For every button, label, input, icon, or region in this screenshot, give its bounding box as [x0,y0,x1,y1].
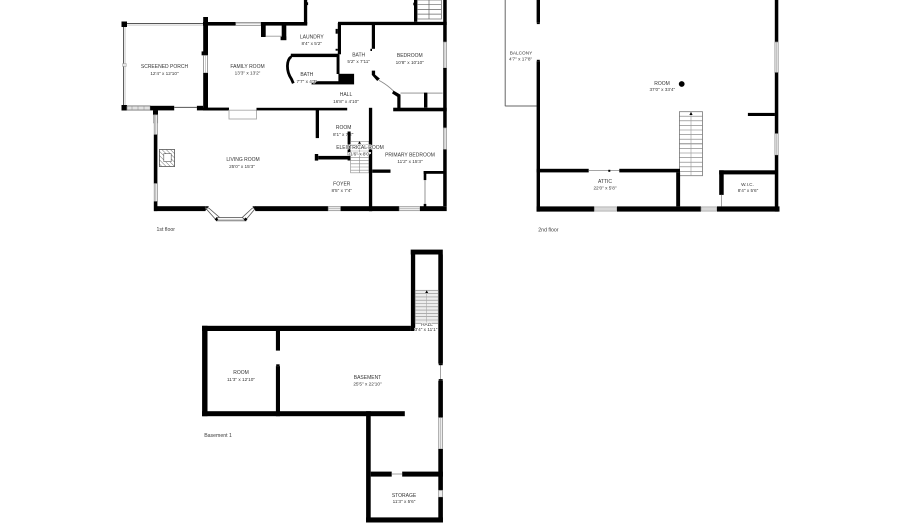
svg-text:HALL: HALL [340,92,353,98]
svg-text:16'8" x 4'10": 16'8" x 4'10" [333,99,359,104]
svg-text:LAUNDRY: LAUNDRY [300,35,324,41]
svg-text:4'7" x 17'8": 4'7" x 17'8" [509,56,532,61]
svg-text:3'4" x 11'1": 3'4" x 11'1" [415,327,438,332]
svg-text:W.I.C.: W.I.C. [741,182,754,187]
svg-text:2nd floor: 2nd floor [538,228,558,234]
svg-text:ROOM: ROOM [233,370,249,376]
svg-text:BALCONY: BALCONY [510,50,533,55]
svg-text:11'6" x 8'0": 11'6" x 8'0" [348,152,371,157]
svg-text:ATTIC: ATTIC [598,179,612,185]
svg-text:5'2" x 7'11": 5'2" x 7'11" [347,59,370,64]
svg-text:25'0" x 15'3": 25'0" x 15'3" [229,164,255,169]
svg-text:8'4" x 5'2": 8'4" x 5'2" [302,41,323,46]
svg-text:SCREENED PORCH: SCREENED PORCH [141,64,189,70]
svg-text:Basement 1: Basement 1 [204,433,232,439]
svg-text:BASEMENT: BASEMENT [354,375,382,381]
svg-text:8'1" x 7'2": 8'1" x 7'2" [333,132,354,137]
svg-text:11'3" x 5'6": 11'3" x 5'6" [393,499,416,504]
svg-text:25'5" x 22'10": 25'5" x 22'10" [353,381,382,386]
svg-text:13'3" x 13'2": 13'3" x 13'2" [235,71,261,76]
svg-text:BATH: BATH [300,72,313,78]
svg-text:ROOM: ROOM [336,125,352,131]
svg-text:PRIMARY BEDROOM: PRIMARY BEDROOM [385,152,435,158]
svg-text:BATH: BATH [352,53,365,59]
svg-text:ELECTRICAL ROOM: ELECTRICAL ROOM [336,145,384,151]
svg-text:8'5" x 7'4": 8'5" x 7'4" [332,188,353,193]
svg-text:FOYER: FOYER [333,181,351,187]
svg-text:1st floor: 1st floor [157,227,176,233]
svg-text:11'2" x 15'3": 11'2" x 15'3" [397,159,423,164]
svg-text:8'4" x 5'6": 8'4" x 5'6" [738,188,759,193]
svg-text:BEDROOM: BEDROOM [397,53,423,59]
svg-text:7'7" x 4'3": 7'7" x 4'3" [297,79,318,84]
svg-text:22'0" x 5'8": 22'0" x 5'8" [593,186,616,191]
svg-text:LIVING ROOM: LIVING ROOM [226,157,259,163]
svg-text:37'0" x 33'4": 37'0" x 33'4" [649,87,675,92]
svg-text:FAMILY ROOM: FAMILY ROOM [230,64,264,70]
svg-text:12'4" x 12'10": 12'4" x 12'10" [150,71,179,76]
svg-text:11'3" x 12'10": 11'3" x 12'10" [227,377,255,382]
svg-text:10'8" x 10'10": 10'8" x 10'10" [396,60,425,65]
